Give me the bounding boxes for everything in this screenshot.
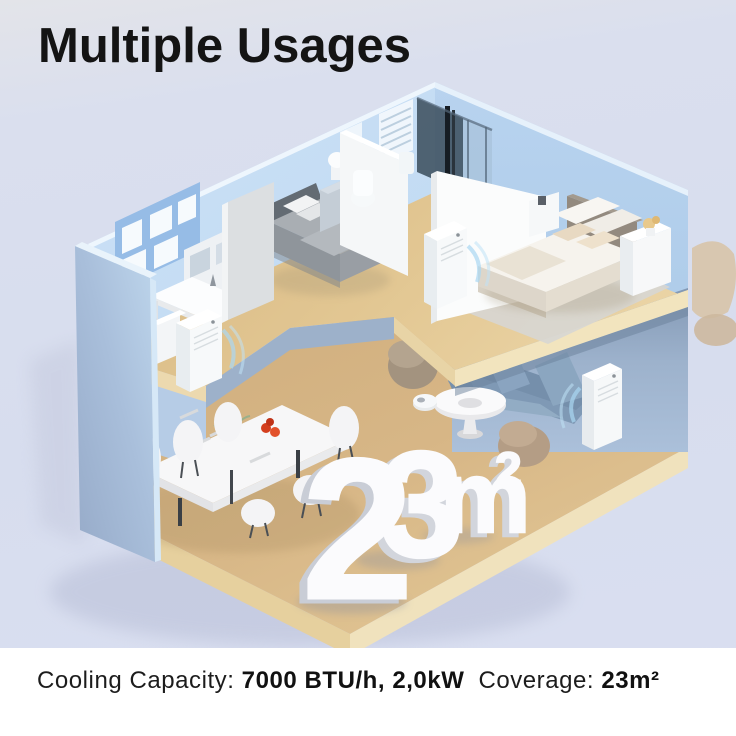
svg-text:2: 2 — [302, 418, 413, 641]
